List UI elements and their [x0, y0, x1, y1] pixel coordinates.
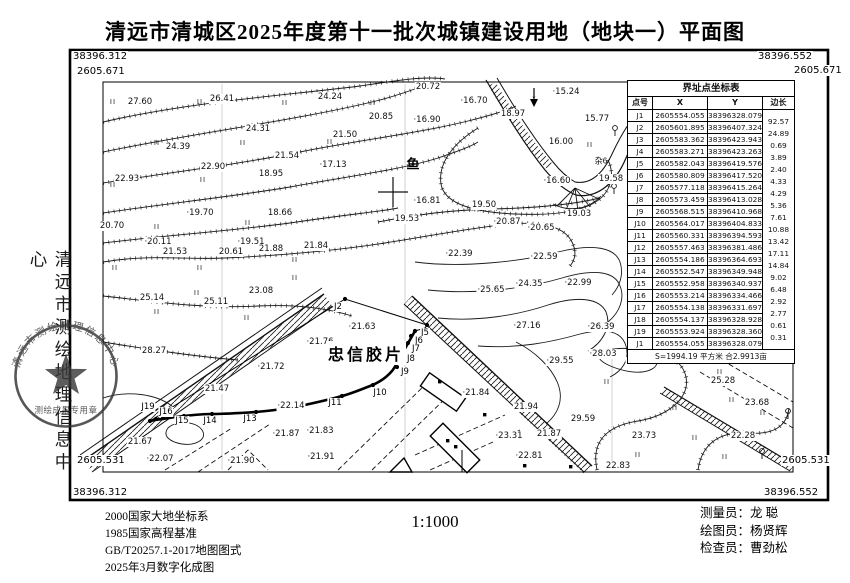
- cell-coord-y: 38396417.520: [708, 170, 763, 182]
- cell-coord-y: 38396419.576: [708, 158, 763, 170]
- cell-coord-y: 38396407.324: [708, 122, 763, 134]
- corner-coord-br-y: 38396.552: [763, 487, 819, 498]
- cell-point-id: J16: [628, 290, 653, 302]
- cell-edge-length: 92.57: [763, 110, 795, 122]
- cell-coord-y: 38396328.079: [708, 338, 763, 350]
- edge-length-value: 0.31: [763, 332, 794, 343]
- cell-point-id: J1: [628, 338, 653, 350]
- cell-point-id: J3: [628, 134, 653, 146]
- col-header-x: X: [653, 97, 708, 110]
- corner-coord-tl-y: 38396.312: [72, 51, 128, 62]
- cell-coord-x: 2605601.895: [653, 122, 708, 134]
- edge-length-value: 13.42: [763, 236, 794, 247]
- cell-coord-x: 2605552.958: [653, 278, 708, 290]
- edge-length-value: 2.92: [763, 296, 794, 307]
- edge-length-value: 24.89: [763, 128, 794, 139]
- edge-length-value: 17.11: [763, 248, 794, 259]
- grid-streaks: [222, 84, 612, 470]
- cell-coord-y: 38396340.937: [708, 278, 763, 290]
- coordinate-table-body: J12605554.05538396328.07992.57J22605601.…: [628, 110, 795, 350]
- edge-length-value: 4.29: [763, 188, 794, 199]
- cell-point-id: J17: [628, 302, 653, 314]
- cell-coord-y: 38396349.948: [708, 266, 763, 278]
- cell-coord-x: 2605554.055: [653, 110, 708, 122]
- cell-point-id: J19: [628, 326, 653, 338]
- cell-point-id: J15: [628, 278, 653, 290]
- cell-coord-y: 38396328.928: [708, 314, 763, 326]
- cell-coord-x: 2605577.118: [653, 182, 708, 194]
- cell-coord-x: 2605580.809: [653, 170, 708, 182]
- cell-coord-y: 38396413.028: [708, 194, 763, 206]
- col-header-point: 点号: [628, 97, 653, 110]
- cell-coord-y: 38396423.943: [708, 134, 763, 146]
- cell-point-id: J11: [628, 230, 653, 242]
- cell-coord-y: 38396328.079: [708, 110, 763, 122]
- cell-coord-x: 2605583.271: [653, 146, 708, 158]
- cell-point-id: J1: [628, 110, 653, 122]
- cell-coord-x: 2605553.214: [653, 290, 708, 302]
- cell-coord-y: 38396328.360: [708, 326, 763, 338]
- edge-length-value: 7.61: [763, 212, 794, 223]
- cell-point-id: J10: [628, 218, 653, 230]
- vegetation-note: 杂6: [595, 156, 607, 167]
- cell-point-id: J9: [628, 206, 653, 218]
- grid-cross: [378, 177, 408, 207]
- map-sheet: 清远市清城区2025年度第十一批次城镇建设用地（地块一）平面图: [0, 0, 850, 583]
- cell-coord-x: 2605557.463: [653, 242, 708, 254]
- cell-coord-x: 2605553.924: [653, 326, 708, 338]
- edge-length-value: 5.36: [763, 200, 794, 211]
- cell-point-id: J7: [628, 182, 653, 194]
- cell-point-id: J13: [628, 254, 653, 266]
- cell-point-id: J4: [628, 146, 653, 158]
- fish-pond-label: 鱼: [406, 154, 419, 173]
- cell-point-id: J2: [628, 122, 653, 134]
- edge-length-value: 4.33: [763, 176, 794, 187]
- table-title: 界址点坐标表: [628, 81, 795, 97]
- edge-length-value: 6.48: [763, 284, 794, 295]
- corner-coord-tl-x: 2605.671: [76, 66, 126, 77]
- flow-arrow-glyph: ↓: [531, 87, 537, 101]
- cell-coord-x: 2605582.043: [653, 158, 708, 170]
- cell-coord-y: 38396404.833: [708, 218, 763, 230]
- edge-length-value: 92.57: [763, 116, 794, 127]
- cell-coord-x: 2605554.138: [653, 302, 708, 314]
- cell-coord-y: 38396423.263: [708, 146, 763, 158]
- edge-length-value: 0.61: [763, 320, 794, 331]
- cell-coord-x: 2605583.362: [653, 134, 708, 146]
- cell-point-id: J8: [628, 194, 653, 206]
- col-header-length: 边长: [763, 97, 795, 110]
- cell-coord-x: 2605552.547: [653, 266, 708, 278]
- road-band-corner: [660, 360, 793, 471]
- corner-coord-tr-x: 2605.671: [793, 65, 843, 76]
- boundary-coordinate-table: 界址点坐标表 点号 X Y 边长 J12605554.05538396328.0…: [627, 80, 795, 364]
- edge-length-value: 0.69: [763, 140, 794, 151]
- edge-length-value: 2.40: [763, 164, 794, 175]
- edge-length-value: 10.88: [763, 224, 794, 235]
- cell-point-id: J5: [628, 158, 653, 170]
- cell-coord-y: 38396410.968: [708, 206, 763, 218]
- cell-coord-x: 2605564.017: [653, 218, 708, 230]
- corner-coord-tr-y: 38396.552: [757, 51, 813, 62]
- cell-coord-x: 2605554.186: [653, 254, 708, 266]
- cell-coord-y: 38396381.486: [708, 242, 763, 254]
- table-row: J12605554.05538396328.07992.57: [628, 110, 795, 122]
- edge-length-value: 9.02: [763, 272, 794, 283]
- corner-coord-bl-y: 38396.312: [72, 487, 128, 498]
- cell-point-id: J6: [628, 170, 653, 182]
- cell-point-id: J18: [628, 314, 653, 326]
- corner-coord-br-x: 2605.531: [781, 455, 831, 466]
- cell-point-id: J12: [628, 242, 653, 254]
- parcel-name-label: 忠信胶片: [326, 341, 406, 365]
- cell-coord-y: 38396394.593: [708, 230, 763, 242]
- cell-coord-x: 2605573.459: [653, 194, 708, 206]
- col-header-y: Y: [708, 97, 763, 110]
- corner-coord-bl-x: 2605.531: [76, 455, 126, 466]
- official-stamp: 清远市测绘地理信息中心 测绘成果专用章: [4, 314, 128, 438]
- stamp-bottom-text: 测绘成果专用章: [34, 405, 97, 415]
- edge-length-value: 2.77: [763, 308, 794, 319]
- cell-coord-x: 2605568.515: [653, 206, 708, 218]
- edge-length-value: 14.84: [763, 260, 794, 271]
- cell-coord-y: 38396334.466: [708, 290, 763, 302]
- cell-point-id: J14: [628, 266, 653, 278]
- stamp-star-icon: [46, 355, 86, 393]
- parcel-area-note: S=1994.19 平方米 合2.9913亩: [628, 350, 795, 364]
- cell-coord-x: 2605554.137: [653, 314, 708, 326]
- cell-coord-y: 38396364.693: [708, 254, 763, 266]
- cell-coord-y: 38396331.697: [708, 302, 763, 314]
- cell-coord-x: 2605560.331: [653, 230, 708, 242]
- buildings: [390, 373, 480, 473]
- cell-coord-x: 2605554.055: [653, 338, 708, 350]
- edge-length-value: 3.89: [763, 152, 794, 163]
- cell-coord-y: 38396415.264: [708, 182, 763, 194]
